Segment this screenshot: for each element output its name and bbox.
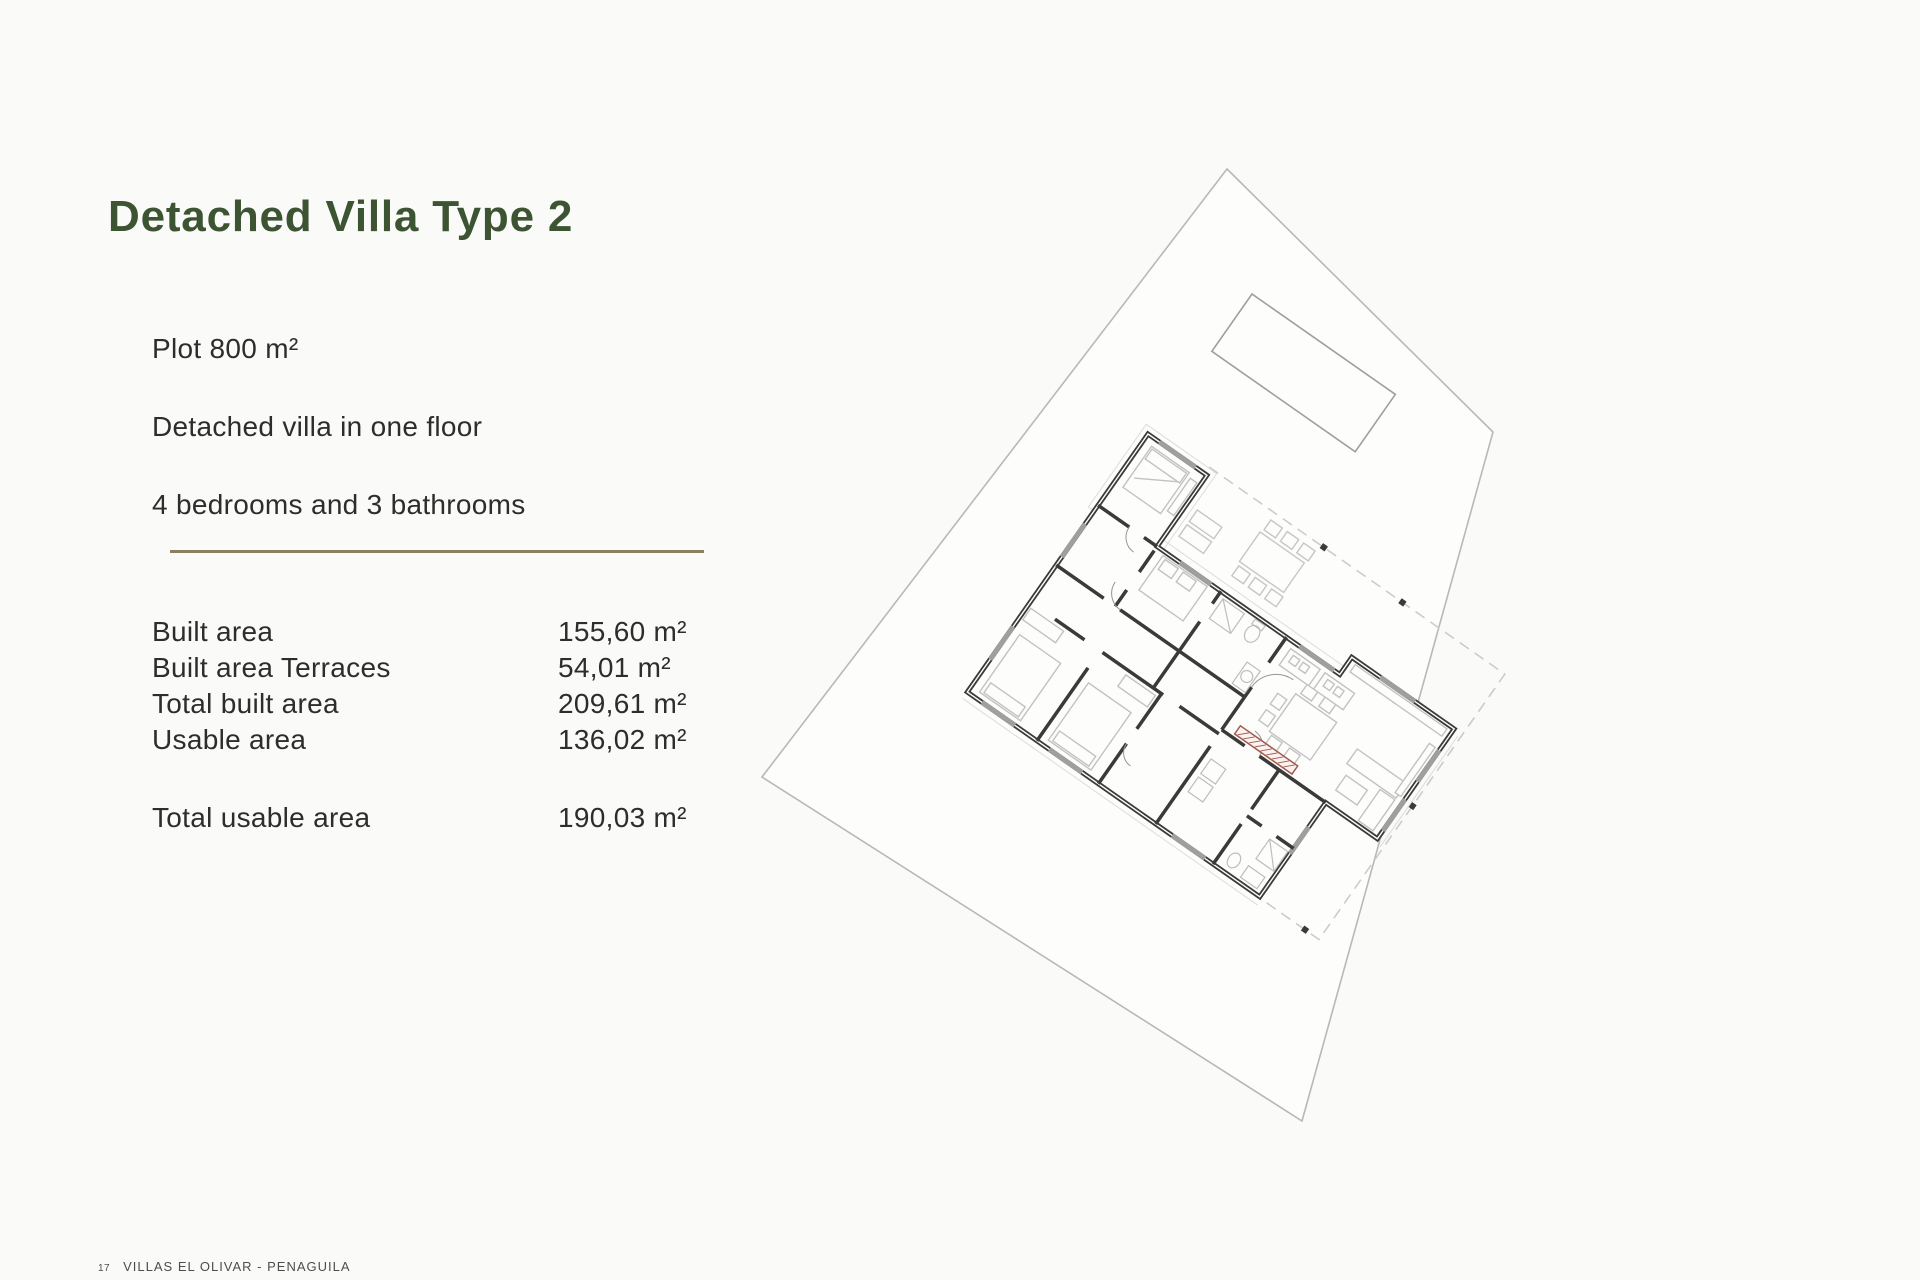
site-plan <box>0 0 1920 1280</box>
brochure-page: Detached Villa Type 2 Plot 800 m² Detach… <box>0 0 1920 1280</box>
